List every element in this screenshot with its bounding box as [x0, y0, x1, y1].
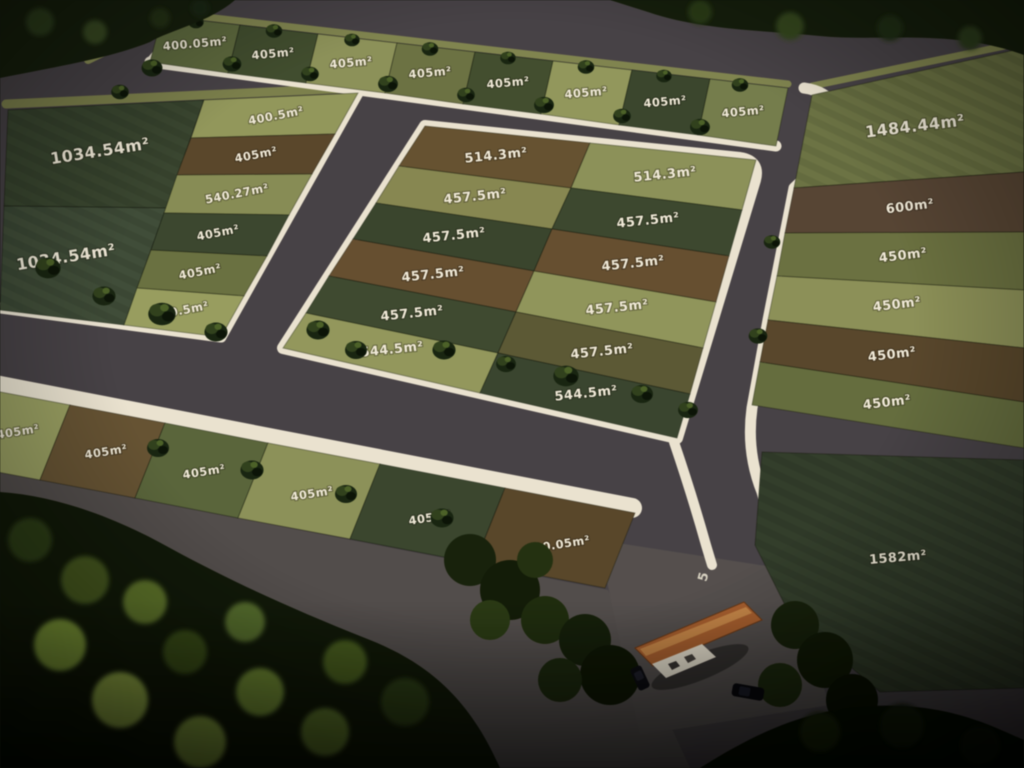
vignette-overlay — [0, 0, 1024, 768]
subdivision-aerial-render: 400.05m² 405m² 405m² 405m² 405m² 405m² 4… — [0, 0, 1024, 768]
subdivision-map-canvas: 400.05m² 405m² 405m² 405m² 405m² 405m² 4… — [0, 0, 1024, 768]
